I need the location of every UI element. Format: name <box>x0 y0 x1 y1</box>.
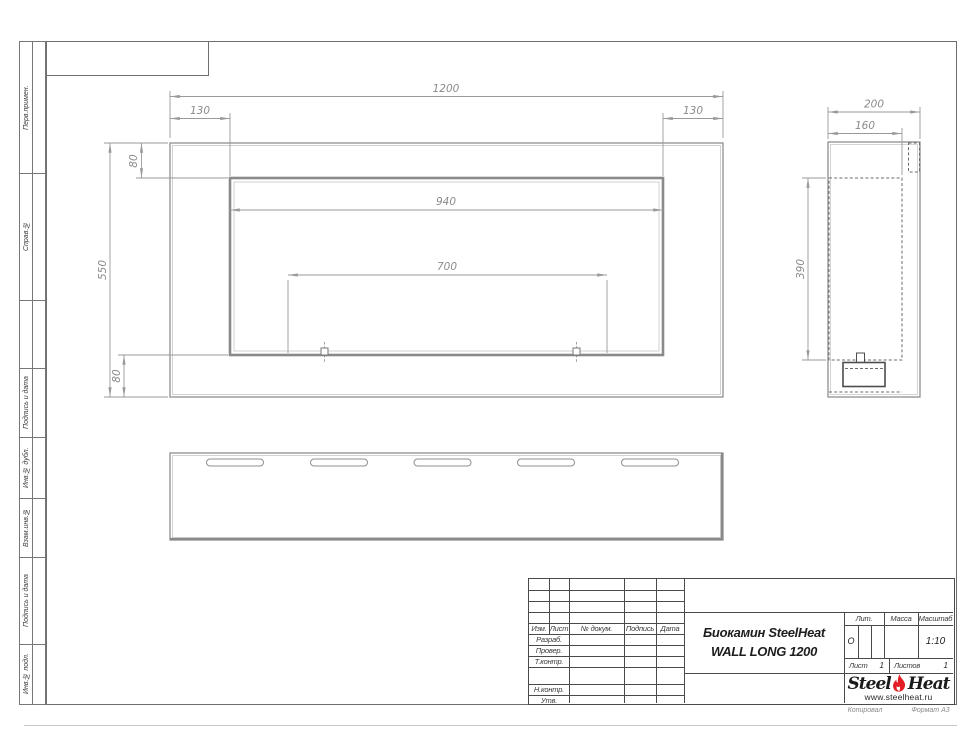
logo-steel-text: Steel <box>848 676 891 693</box>
top-left-reference-box <box>47 42 209 76</box>
dim-side-depth: 200 <box>828 99 920 140</box>
lit-label: Лит. <box>844 612 884 625</box>
sheet-cell: Лист 1 <box>844 658 889 673</box>
row-ncontrol: Н.контр. <box>529 684 569 695</box>
sidebar-cell-inv-dubl: Инв.№ дубл. <box>20 437 45 499</box>
sidebar-cell-label: Взам.инв.№ <box>20 498 33 557</box>
col-header-doc: № докум. <box>569 623 624 634</box>
col-header-izm: Изм. <box>529 623 549 634</box>
dim-front-height: 550 <box>97 143 168 397</box>
sidebar-cell-label: Подпись и дата <box>20 368 33 437</box>
svg-text:80: 80 <box>128 154 140 168</box>
svg-text:130: 130 <box>683 105 703 117</box>
sheet-label: Лист <box>849 662 868 670</box>
logo-row: Steel Heat <box>848 674 950 694</box>
svg-text:130: 130 <box>190 105 210 117</box>
product-title-line2: WALL LONG 1200 <box>711 644 817 660</box>
col-header-sign: Подпись <box>624 623 656 634</box>
dim-front-total-width: 1200 <box>170 83 723 138</box>
sidebar-cell-perv-primen: Перв.примен. <box>20 42 45 174</box>
row-checked: Провер. <box>529 645 569 656</box>
product-title: Биокамин SteelHeat WALL LONG 1200 <box>684 612 844 673</box>
svg-text:700: 700 <box>437 261 457 273</box>
sheets-value: 1 <box>944 662 948 670</box>
sidebar-cell-label: Подпись и дата <box>20 557 33 644</box>
svg-text:390: 390 <box>795 259 807 279</box>
sidebar-cell-inv-podl: Инв.№ подл. <box>20 644 45 704</box>
gridline <box>858 625 859 658</box>
sidebar-cell-label: Перв.примен. <box>20 42 33 173</box>
sheets-label: Листов <box>894 662 920 670</box>
gridline <box>529 601 684 602</box>
sheet-value: 1 <box>880 662 884 670</box>
logo-website: www.steelheat.ru <box>865 693 933 702</box>
paper-bottom-edge <box>24 725 957 726</box>
left-stamp-column: Перв.примен. Справ.№ Подпись и дата Инв.… <box>19 41 46 705</box>
title-block: Изм. Лист № докум. Подпись Дата Разраб. … <box>528 578 955 705</box>
copied-by-note: Копировал <box>835 707 895 714</box>
sheets-cell: Листов 1 <box>889 658 953 673</box>
svg-text:940: 940 <box>436 196 456 208</box>
row-tcontrol: Т.контр. <box>529 656 569 667</box>
sidebar-cell-empty <box>20 300 45 369</box>
company-logo: Steel Heat www.steelheat.ru <box>844 673 953 703</box>
sidebar-cell-podpis-data-2: Подпись и дата <box>20 557 45 645</box>
lit-value: О <box>844 625 858 658</box>
svg-text:1200: 1200 <box>433 83 460 95</box>
sidebar-cell-sprav-no: Справ.№ <box>20 173 45 301</box>
scale-value: 1:10 <box>918 625 953 658</box>
svg-text:80: 80 <box>111 369 123 383</box>
col-header-date: Дата <box>656 623 684 634</box>
gridline <box>529 590 684 591</box>
product-title-line1: Биокамин SteelHeat <box>703 625 825 641</box>
row-developed: Разраб. <box>529 634 569 645</box>
flame-icon <box>892 674 907 693</box>
drawing-sheet: 1200 130 130 80 550 80 940 <box>0 0 970 749</box>
mass-label: Масса <box>884 612 918 625</box>
logo-heat-text: Heat <box>908 676 950 693</box>
sidebar-cell-podpis-data-1: Подпись и дата <box>20 368 45 438</box>
sidebar-cell-label: Справ.№ <box>20 173 33 300</box>
format-note: Формат А3 <box>903 707 958 714</box>
gridline <box>871 625 872 658</box>
gridline <box>529 667 684 668</box>
dim-side-opening-height: 390 <box>795 178 826 360</box>
col-header-list: Лист <box>549 623 569 634</box>
side-view-outline <box>828 142 920 397</box>
sidebar-cell-vzam-inv: Взам.инв.№ <box>20 498 45 558</box>
sidebar-cell-label: Инв.№ подл. <box>20 644 33 704</box>
svg-text:200: 200 <box>864 99 884 111</box>
row-approved: Утв. <box>529 695 569 706</box>
sidebar-cell-label: Инв.№ дубл. <box>20 437 33 498</box>
svg-text:550: 550 <box>97 260 109 280</box>
scale-label: Масштаб <box>918 612 953 625</box>
svg-text:160: 160 <box>855 120 875 132</box>
